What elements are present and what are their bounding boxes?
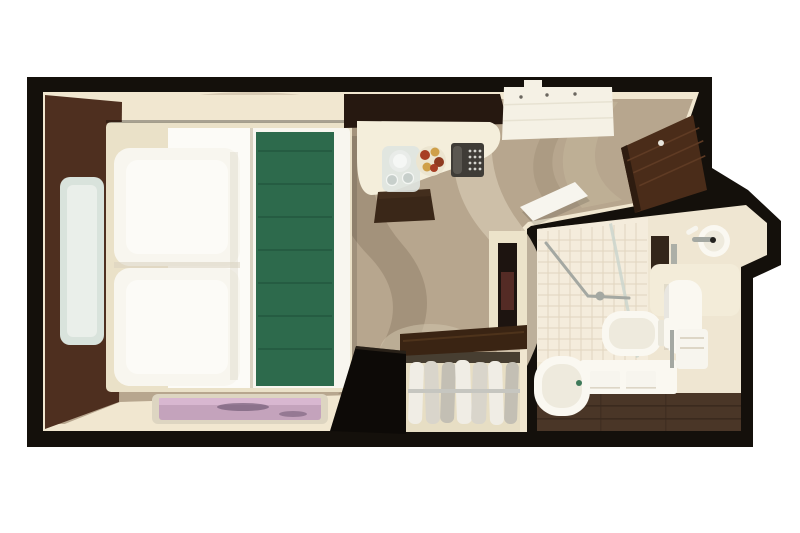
stateroom-floor-plan: Top-down 3D floor plan rendering of a st… [0, 0, 800, 533]
telephone [451, 143, 484, 177]
rug-art-shape [217, 403, 269, 411]
ceiling-panel [502, 87, 614, 140]
soap [576, 380, 582, 386]
bathtub-interior [542, 364, 582, 408]
bed [106, 120, 357, 392]
ice-bucket-set [382, 146, 420, 192]
toilet-hinge [658, 320, 665, 346]
ceiling-light-panel [502, 80, 614, 140]
pillow-inner [126, 280, 228, 374]
plank-seam [665, 393, 667, 431]
ice-bucket-lid [393, 154, 407, 168]
downlight [573, 92, 576, 95]
mat-edge [626, 387, 656, 389]
toilet-seat [609, 318, 655, 349]
wardrobe-side-panel [520, 344, 527, 432]
bath-mat [626, 371, 656, 389]
fruit [420, 150, 430, 160]
bathroom [534, 205, 767, 431]
plank-line [537, 418, 741, 420]
glass-panel-highlight [67, 185, 97, 337]
mat-edge [590, 387, 620, 389]
closet-rail [408, 389, 520, 393]
fruit-bowl [416, 146, 446, 176]
wall-vent [524, 80, 542, 92]
bed-head-gap-shadow [106, 120, 352, 123]
faucet-knob [710, 237, 716, 243]
pillow-inner [126, 160, 228, 254]
rug-art-shape [279, 411, 307, 417]
door-handle [658, 140, 664, 146]
tv-screen-image [501, 272, 514, 310]
tv-unit [489, 231, 527, 335]
towel-fold [680, 347, 704, 349]
accent-rug [152, 394, 328, 424]
plank-seam [600, 393, 602, 431]
phone-handset [453, 146, 462, 174]
towel-rail [670, 330, 674, 368]
green-bed-runner [256, 132, 334, 386]
downlight [545, 93, 548, 96]
pillow-edge-shadow [230, 152, 238, 380]
shower-handset [596, 292, 605, 301]
pillow-seam [114, 262, 240, 268]
fruit [431, 148, 440, 157]
downlight [519, 95, 522, 98]
fruit [430, 164, 438, 172]
floor-plan-rendering: Top-down 3D floor plan rendering of a st… [0, 0, 800, 533]
towel-fold [680, 337, 704, 339]
sheet-fold-line [250, 128, 253, 388]
garment [471, 362, 488, 424]
garment [504, 362, 519, 424]
bath-mat [590, 371, 620, 389]
